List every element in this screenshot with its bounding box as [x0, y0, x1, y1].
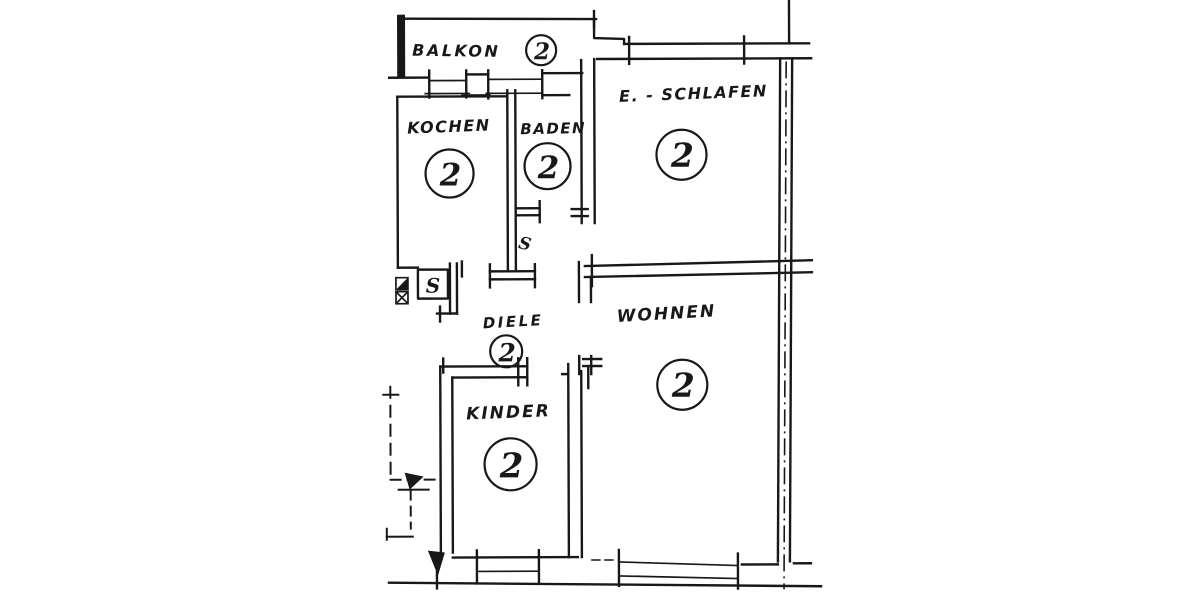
half-filled-square-icon [396, 278, 408, 290]
room-number-balkon: 2 [533, 38, 550, 65]
room-number-baden: 2 [537, 150, 560, 186]
shaft-symbols [396, 278, 408, 304]
room-number-kochen: 2 [439, 157, 462, 193]
room-label-kochen: KOCHEN [407, 115, 491, 137]
room-label-balkon: BALKON [412, 41, 500, 61]
room-number-kinder: 2 [499, 446, 524, 486]
room-label-wohnen: WOHNEN [616, 301, 716, 327]
wall-centerline [782, 61, 788, 589]
floor-plan: BALKON KOCHEN BADEN E. - SCHLAFEN DIELE … [0, 0, 1200, 600]
room-number-diele: 2 [497, 338, 516, 367]
floor-plan-page: BALKON KOCHEN BADEN E. - SCHLAFEN DIELE … [0, 0, 1200, 600]
balcony-pier [397, 15, 405, 77]
room-label-schlafen: E. - SCHLAFEN [619, 81, 768, 106]
room-label-diele: DIELE [482, 311, 544, 332]
room-label-kinder: KINDER [466, 401, 551, 424]
dashed-boundary [383, 387, 441, 540]
room-label-baden: BADEN [520, 119, 586, 138]
survey-mark-icon [405, 473, 424, 490]
room-number-wohnen: 2 [671, 366, 695, 405]
wall-mark-letter: S [517, 233, 533, 255]
shaft-letter: S [426, 274, 441, 298]
room-number-schlafen: 2 [670, 136, 694, 175]
